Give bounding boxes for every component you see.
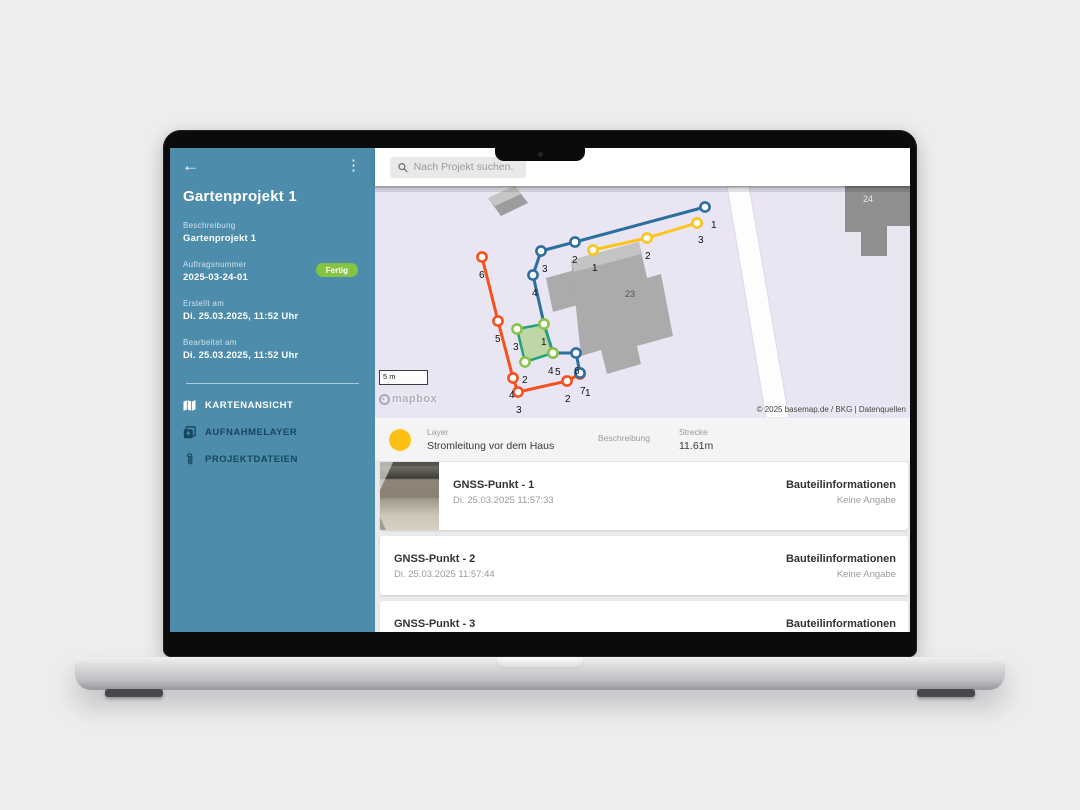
sidebar-menu: KARTENANSICHT AUFNAHMELAYER [170, 392, 375, 473]
laptop-lid-groove [496, 657, 584, 669]
svg-text:2: 2 [522, 375, 528, 386]
layer-color-dot [389, 429, 411, 451]
layers-add-icon [183, 426, 196, 439]
laptop-base [75, 657, 1005, 690]
map-attribution[interactable]: © 2025 basemap.de / BKG | Datenquellen [757, 405, 906, 414]
list-item[interactable]: GNSS-Punkt - 2 Di. 25.03.2025 11:57:44 B… [380, 536, 908, 595]
laptop-notch [495, 148, 585, 161]
svg-text:7: 7 [580, 386, 586, 397]
description-label: Beschreibung [598, 433, 663, 443]
svg-text:4: 4 [532, 288, 538, 299]
building-number-label: 24 [863, 194, 873, 204]
svg-text:1: 1 [592, 263, 598, 274]
point-photo-thumbnail[interactable] [380, 462, 439, 530]
svg-text:5: 5 [495, 334, 501, 345]
distance-label: Strecke [679, 427, 713, 437]
svg-text:2: 2 [565, 394, 571, 405]
status-badge: Fertig [316, 263, 358, 277]
field-erstellt-am: Erstellt am Di. 25.03.2025, 11:52 Uhr [170, 299, 375, 322]
component-info-value: Keine Angabe [786, 495, 896, 506]
field-beschreibung: Beschreibung Gartenprojekt 1 [170, 221, 375, 244]
point-title: GNSS-Punkt - 3 [394, 618, 475, 630]
field-auftragsnummer: Auftragsnummer 2025-03-24-01 Fertig [170, 260, 375, 283]
laptop-screen-bezel: ← ⋮ Gartenprojekt 1 Beschreibung Gartenp… [163, 130, 917, 657]
svg-text:2: 2 [572, 255, 578, 266]
sidebar-divider [186, 383, 359, 384]
svg-text:3: 3 [698, 235, 704, 246]
list-item[interactable]: GNSS-Punkt - 3 Bauteilinformationen [380, 601, 908, 632]
layer-name: Stromleitung vor dem Haus [427, 440, 582, 452]
field-bearbeitet-am: Bearbeitet am Di. 25.03.2025, 11:52 Uhr [170, 338, 375, 361]
mapbox-wordmark: mapbox [392, 393, 437, 405]
svg-text:3: 3 [542, 264, 548, 275]
back-arrow-icon[interactable]: ← [182, 157, 199, 174]
svg-text:1: 1 [585, 388, 591, 399]
sidebar-item-label: PROJEKTDATEIEN [205, 454, 298, 465]
svg-text:5: 5 [555, 367, 561, 378]
laptop-foot [105, 689, 163, 697]
svg-text:4: 4 [509, 390, 515, 401]
point-timestamp: Di. 25.03.2025 11:57:44 [394, 569, 495, 580]
map-canvas: 65432112345671233142 2324 [375, 186, 910, 418]
project-sidebar: ← ⋮ Gartenprojekt 1 Beschreibung Gartenp… [170, 148, 375, 632]
webcam-icon [538, 152, 543, 157]
point-title: GNSS-Punkt - 2 [394, 553, 495, 565]
field-label: Bearbeitet am [183, 338, 362, 347]
distance-value: 11.61m [679, 440, 713, 452]
building-number-label: 23 [625, 289, 635, 299]
selected-layer-row[interactable]: Layer Stromleitung vor dem Haus Beschrei… [375, 418, 910, 462]
svg-text:2: 2 [645, 251, 651, 262]
component-info-label: Bauteilinformationen [786, 479, 896, 491]
mapbox-logo[interactable]: ◐ mapbox [379, 393, 437, 405]
component-info-label: Bauteilinformationen [786, 618, 896, 630]
main-panel: 65432112345671233142 2324 5 m ◐ mapbox ©… [375, 148, 910, 632]
laptop-foot [917, 689, 975, 697]
project-title: Gartenprojekt 1 [170, 174, 375, 205]
field-label: Erstellt am [183, 299, 362, 308]
component-info-label: Bauteilinformationen [786, 553, 896, 565]
sidebar-item-label: AUFNAHMELAYER [205, 427, 297, 438]
layer-label: Layer [427, 427, 582, 437]
kebab-menu-icon[interactable]: ⋮ [346, 158, 361, 173]
svg-text:1: 1 [541, 337, 547, 348]
field-value: Di. 25.03.2025, 11:52 Uhr [183, 350, 362, 361]
svg-text:4: 4 [548, 366, 554, 377]
sidebar-item-kartenansicht[interactable]: KARTENANSICHT [170, 392, 375, 419]
svg-text:6: 6 [479, 270, 485, 281]
search-icon [398, 162, 408, 173]
gnss-point-list: GNSS-Punkt - 1 Di. 25.03.2025 11:57:33 B… [375, 462, 910, 632]
field-value: Gartenprojekt 1 [183, 233, 362, 244]
sidebar-item-projektdateien[interactable]: PROJEKTDATEIEN [170, 446, 375, 473]
map-view[interactable]: 65432112345671233142 2324 5 m ◐ mapbox ©… [375, 186, 910, 418]
sidebar-item-aufnahmelayer[interactable]: AUFNAHMELAYER [170, 419, 375, 446]
app-window: ← ⋮ Gartenprojekt 1 Beschreibung Gartenp… [170, 148, 910, 632]
page-background: ← ⋮ Gartenprojekt 1 Beschreibung Gartenp… [0, 0, 1080, 810]
svg-text:3: 3 [516, 405, 522, 416]
map-icon [183, 399, 196, 412]
svg-text:6: 6 [574, 366, 580, 377]
mapbox-circle-icon: ◐ [379, 394, 390, 405]
sidebar-item-label: KARTENANSICHT [205, 400, 293, 411]
topbar [375, 148, 910, 186]
svg-text:1: 1 [711, 220, 717, 231]
component-info-value: Keine Angabe [786, 569, 896, 580]
point-title: GNSS-Punkt - 1 [453, 479, 554, 491]
map-scalebar: 5 m [379, 370, 428, 385]
field-label: Beschreibung [183, 221, 362, 230]
paperclip-icon [183, 453, 196, 466]
list-item[interactable]: GNSS-Punkt - 1 Di. 25.03.2025 11:57:33 B… [380, 462, 908, 530]
svg-text:3: 3 [513, 342, 519, 353]
search-input[interactable] [414, 161, 518, 173]
point-timestamp: Di. 25.03.2025 11:57:33 [453, 495, 554, 506]
field-value: Di. 25.03.2025, 11:52 Uhr [183, 311, 362, 322]
